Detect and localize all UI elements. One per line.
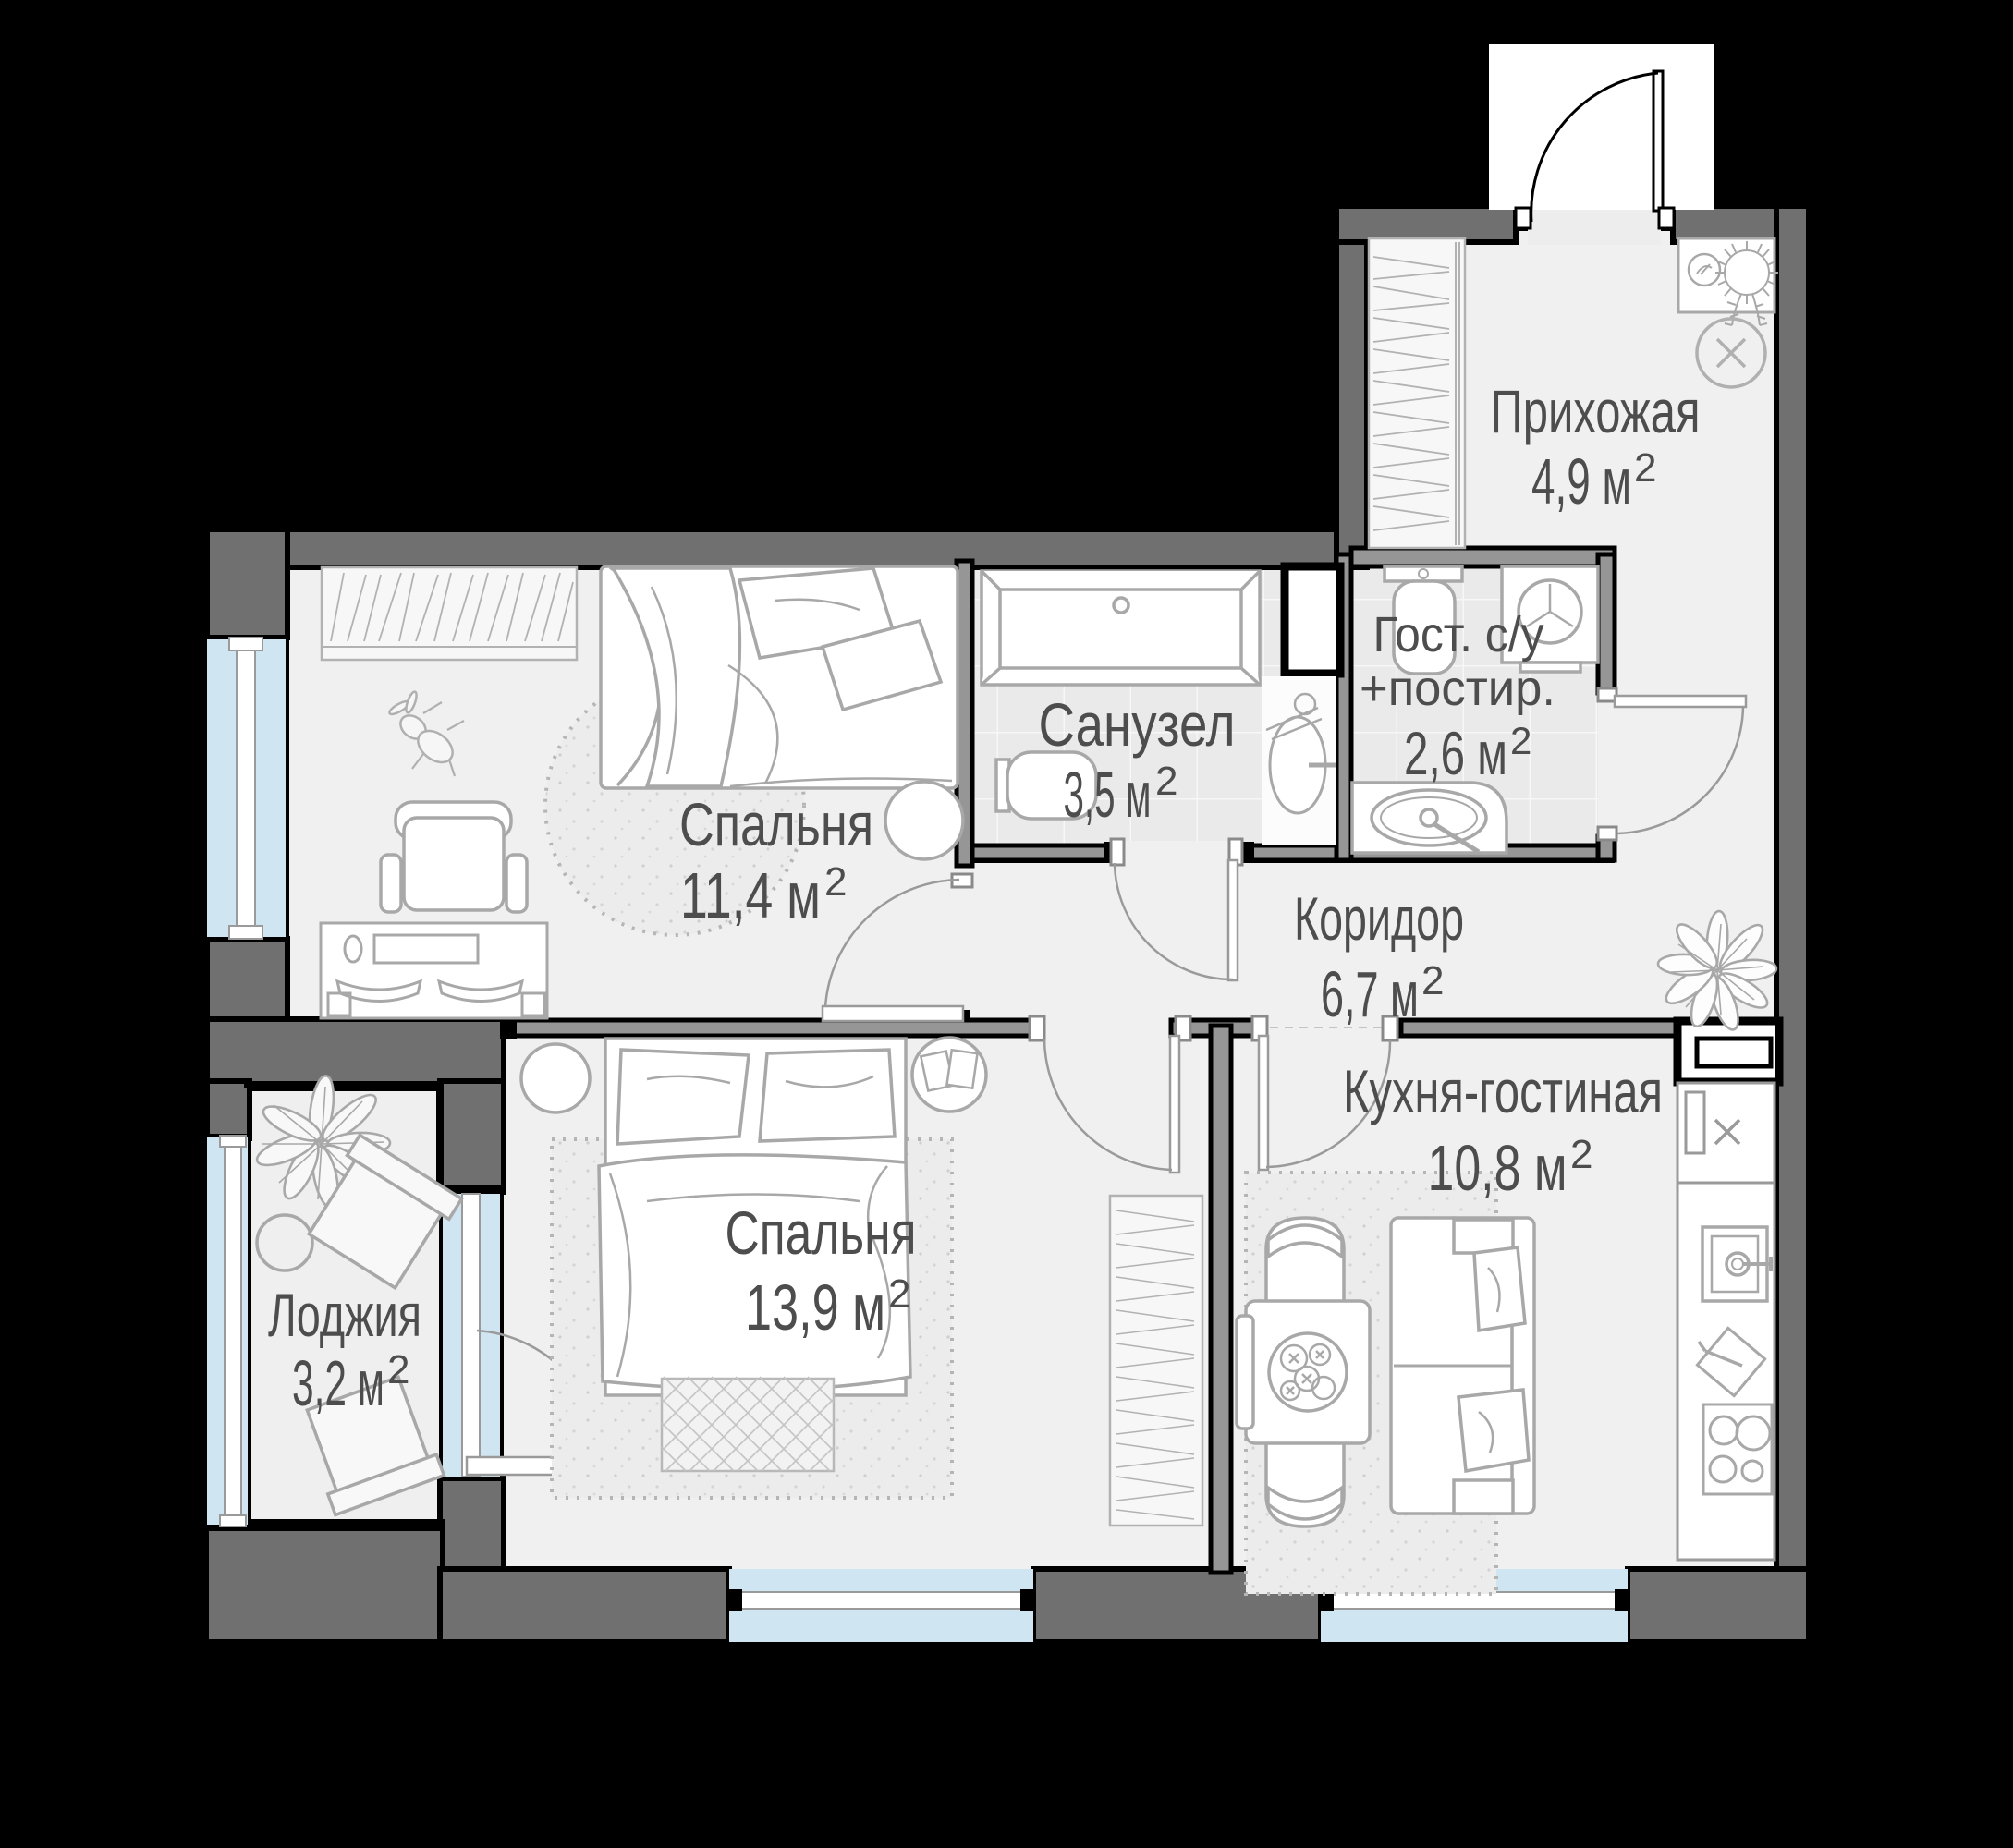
svg-text:2: 2 [1421, 958, 1444, 1003]
svg-text:6,7 м: 6,7 м [1321, 958, 1419, 1030]
svg-text:+постир.: +постир. [1360, 661, 1555, 716]
svg-text:Спальня: Спальня [726, 1198, 917, 1267]
svg-text:2: 2 [1510, 719, 1531, 762]
svg-text:Спальня: Спальня [679, 790, 873, 858]
svg-text:4,9 м: 4,9 м [1531, 445, 1631, 517]
svg-text:Коридор: Коридор [1294, 884, 1464, 953]
svg-text:11,4 м: 11,4 м [680, 859, 821, 931]
svg-text:Кухня-гостиная: Кухня-гостиная [1343, 1057, 1663, 1125]
svg-text:3,2 м: 3,2 м [292, 1347, 384, 1419]
svg-text:2: 2 [387, 1347, 409, 1392]
svg-text:13,9 м: 13,9 м [745, 1271, 885, 1343]
svg-text:2: 2 [1570, 1132, 1592, 1177]
svg-text:2: 2 [1634, 445, 1656, 491]
svg-text:2: 2 [824, 859, 847, 905]
svg-text:2: 2 [888, 1271, 910, 1317]
svg-text:Прихожая: Прихожая [1491, 377, 1701, 445]
svg-text:Гост. с/у: Гост. с/у [1373, 607, 1544, 663]
svg-text:10,8 м: 10,8 м [1428, 1132, 1568, 1204]
svg-text:2: 2 [1155, 759, 1177, 804]
svg-text:Лоджия: Лоджия [268, 1281, 421, 1349]
svg-text:3,5 м: 3,5 м [1064, 759, 1152, 831]
svg-text:Санузел: Санузел [1039, 690, 1236, 759]
svg-text:2,6 м: 2,6 м [1404, 719, 1507, 787]
